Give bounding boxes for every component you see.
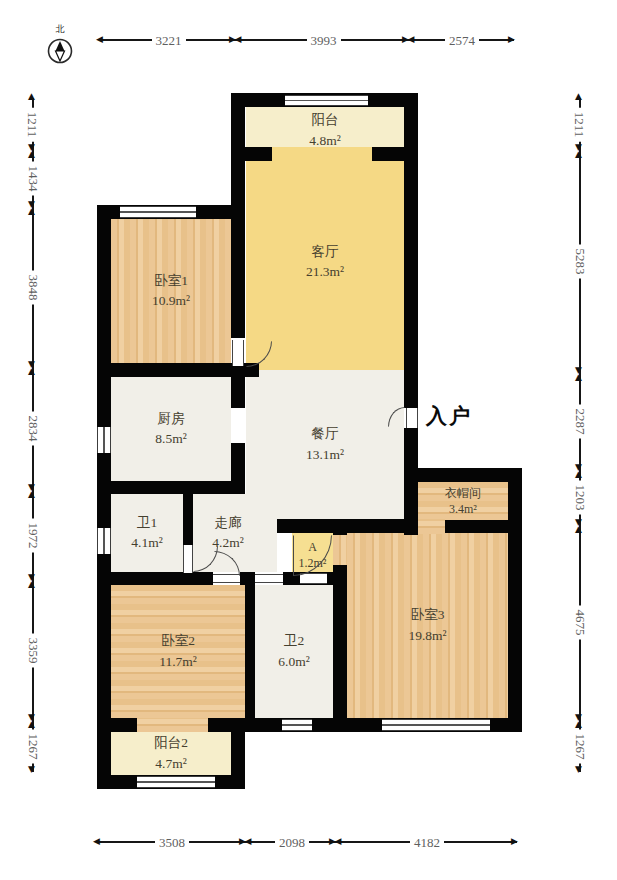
window-symbol (137, 776, 215, 788)
dimension-value: 2287 (574, 405, 587, 439)
opening-cloakroom-bedroom3 (418, 519, 445, 534)
dim-arrow-icon (93, 837, 100, 846)
dimension-value: 1267 (27, 729, 40, 763)
compass: 北 (44, 24, 76, 66)
dimension-value: 3848 (27, 270, 40, 304)
wall (245, 572, 255, 718)
room-name: 客厅 (312, 242, 339, 262)
dimension-value: 3221 (152, 34, 186, 47)
room-cloakroom: 衣帽间 3.4m² (418, 482, 508, 520)
wall (508, 482, 522, 732)
dim-junction-icon (575, 366, 582, 382)
room-bedroom3: 卧室3 19.8m² (347, 533, 508, 718)
dim-arrow-icon (511, 837, 518, 846)
door-sill (406, 408, 418, 428)
dimension-segment: 4182 (337, 835, 517, 849)
room-living: 客厅 21.3m² (246, 154, 404, 370)
wall (231, 443, 245, 494)
wall (372, 147, 404, 161)
dim-junction-icon (575, 463, 582, 479)
room-kitchen: 厨房 8.5m² (111, 377, 231, 481)
dim-junction-icon (575, 143, 582, 159)
door-sill (232, 340, 244, 366)
dimension-value: 2098 (275, 836, 309, 849)
opening-living-balcony (272, 147, 372, 161)
dimension-value: 1434 (27, 162, 40, 196)
room-area: 11.7m² (159, 652, 197, 672)
dimension-value: 3359 (27, 633, 40, 667)
dimension-value: 1211 (27, 107, 40, 141)
dim-junction-icon (329, 837, 340, 846)
room-area: 6.0m² (278, 652, 309, 672)
room-area: 3.4m² (449, 501, 477, 517)
wall (231, 377, 245, 408)
dim-junction-icon (28, 573, 35, 589)
dimension-segment: 2098 (247, 835, 337, 849)
dimension-segment: 1972 (26, 490, 40, 580)
room-name: 阳台2 (154, 733, 188, 753)
dimension-segment: 3359 (26, 580, 40, 720)
dimension-segment: 2574 (410, 33, 514, 47)
dimension-value: 1203 (574, 481, 587, 515)
dimension-value: 1267 (574, 729, 587, 763)
room-name: 卧室2 (161, 631, 195, 651)
room-bath2: 卫2 6.0m² (255, 585, 333, 718)
dim-junction-icon (229, 35, 240, 44)
room-area: 19.8m² (408, 626, 446, 646)
wall (404, 428, 418, 468)
dimension-segment: 3221 (100, 33, 237, 47)
room-name: 餐厅 (312, 424, 339, 444)
dimension-value: 4675 (574, 606, 587, 640)
room-area: 4.1m² (131, 533, 162, 553)
dim-junction-icon (575, 713, 582, 729)
wall (404, 93, 418, 408)
window-symbol (97, 528, 111, 554)
dimension-value: 1211 (574, 107, 587, 141)
room-area: 13.1m² (306, 445, 344, 465)
dim-junction-icon (239, 837, 250, 846)
room-name: 卫2 (284, 631, 304, 651)
window-symbol (97, 427, 111, 453)
room-area: 4.7m² (155, 754, 186, 774)
dim-junction-icon (28, 143, 35, 159)
dim-junction-icon (402, 35, 413, 44)
wall (97, 205, 111, 789)
wall (97, 481, 232, 494)
wall (245, 147, 272, 161)
dimension-segment: 3508 (97, 835, 247, 849)
room-area: 10.9m² (152, 291, 190, 311)
dimension-segment: 3848 (26, 207, 40, 367)
dim-junction-icon (28, 483, 35, 499)
room-area: 21.3m² (306, 262, 344, 282)
dimension-value: 2574 (445, 34, 479, 47)
dim-arrow-icon (508, 35, 515, 44)
room-name: 厨房 (158, 409, 185, 429)
dim-junction-icon (575, 518, 582, 534)
door-sill (183, 545, 193, 573)
wall (183, 494, 193, 545)
dimension-segment: 2834 (26, 367, 40, 490)
window-symbol (120, 206, 196, 218)
wall (404, 468, 522, 482)
dimension-value: 3508 (155, 836, 189, 849)
room-bedroom2: 卧室2 11.7m² (111, 585, 245, 718)
dimension-segment: 4675 (573, 525, 587, 720)
room-bedroom1: 卧室1 10.9m² (111, 219, 231, 363)
wall (333, 519, 347, 535)
dim-arrow-icon (575, 765, 582, 774)
dimension-value: 2834 (27, 412, 40, 446)
room-name: 走廊 (215, 513, 242, 533)
dim-arrow-icon (28, 765, 35, 774)
window-symbol (285, 95, 368, 106)
compass-needle-icon (45, 34, 75, 66)
dim-arrow-icon (96, 35, 103, 44)
dimension-segment: 5283 (573, 150, 587, 373)
dimension-segment: 3993 (237, 33, 410, 47)
room-balcony2: 阳台2 4.7m² (111, 732, 231, 775)
door-sill (300, 573, 327, 584)
wall (445, 520, 508, 533)
window-symbol (382, 719, 490, 731)
room-name: 卧室3 (411, 605, 445, 625)
wall (240, 572, 245, 585)
wall (333, 565, 347, 718)
dim-arrow-icon (575, 92, 582, 101)
wall (231, 93, 245, 338)
room-name: 衣帽间 (445, 485, 481, 501)
opening-bedroom3-left (333, 535, 347, 565)
room-name: 卫1 (137, 513, 157, 533)
wall (97, 572, 213, 585)
room-bath1: 卫1 4.1m² (111, 494, 183, 572)
floor-plan: 阳台 4.8m² 客厅 21.3m² 卧室1 10.9m² 厨房 8.5m² 餐… (0, 0, 617, 880)
dim-junction-icon (28, 713, 35, 729)
dim-arrow-icon (28, 92, 35, 101)
room-name: 卧室1 (154, 271, 188, 291)
dimension-value: 3993 (307, 34, 341, 47)
dimension-segment: 2287 (573, 373, 587, 470)
wall (231, 718, 245, 789)
wall (277, 519, 418, 533)
dimension-value: 1972 (27, 518, 40, 552)
dim-junction-icon (28, 200, 35, 216)
window-symbol (282, 719, 312, 731)
dimension-value: 5283 (574, 245, 587, 279)
entrance-label: 入户 (426, 402, 472, 430)
wall (97, 718, 137, 732)
room-area: 8.5m² (155, 429, 186, 449)
dim-junction-icon (28, 360, 35, 376)
dimension-value: 4182 (410, 836, 444, 849)
compass-north-label: 北 (56, 24, 65, 34)
door-sill (255, 574, 283, 583)
opening-bedroom2-balcony2 (137, 718, 208, 732)
room-name: 阳台 (312, 110, 339, 130)
wall (97, 363, 245, 377)
